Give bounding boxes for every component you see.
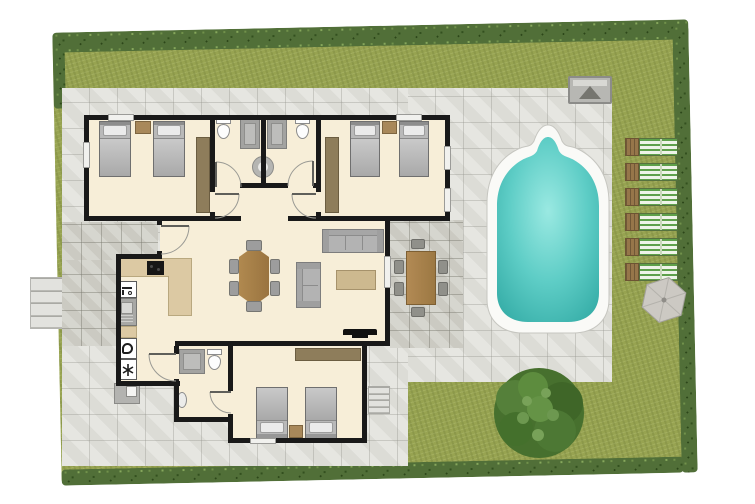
door-swing-bathroom-3 bbox=[149, 354, 176, 381]
door-swing-bathroom-2 bbox=[288, 161, 313, 186]
door-swing-bedroom-1 bbox=[215, 194, 239, 218]
door-swing-bedroom-3 bbox=[210, 392, 231, 413]
door-swing-bathroom-1 bbox=[216, 162, 241, 187]
door-swing-bedroom-2 bbox=[292, 194, 316, 218]
door-swings bbox=[0, 0, 755, 504]
door-swing-entrance bbox=[161, 226, 189, 254]
floor-plan bbox=[0, 0, 755, 504]
